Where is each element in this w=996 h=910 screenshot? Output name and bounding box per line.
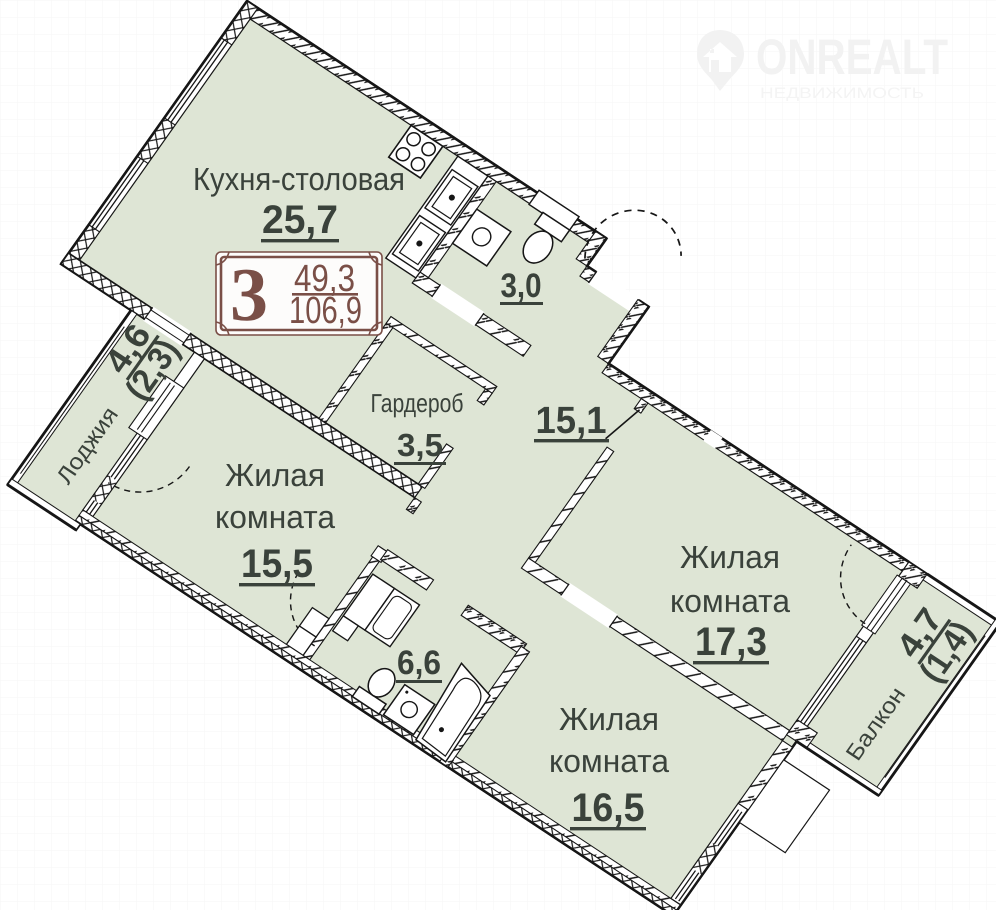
svg-text:Кухня-столовая: Кухня-столовая [193,161,405,197]
svg-text:16,5: 16,5 [572,786,645,830]
svg-text:3,5: 3,5 [397,427,443,463]
svg-text:25,7: 25,7 [262,198,338,242]
svg-text:НЕДВИЖИМОСТЬ: НЕДВИЖИМОСТЬ [760,85,924,102]
svg-text:6,6: 6,6 [397,644,441,682]
svg-text:комната: комната [549,743,669,779]
svg-text:Жилая: Жилая [559,701,659,737]
svg-text:17,3: 17,3 [695,620,767,664]
svg-text:3: 3 [230,253,268,337]
svg-text:106,9: 106,9 [289,290,362,332]
svg-text:Жилая: Жилая [225,457,325,493]
svg-text:ONREALT: ONREALT [756,29,948,85]
svg-text:комната: комната [670,583,790,619]
svg-text:комната: комната [215,499,335,535]
svg-text:Жилая: Жилая [680,539,780,575]
svg-text:15,5: 15,5 [241,542,313,586]
svg-text:3,0: 3,0 [501,267,542,305]
svg-text:15,1: 15,1 [536,400,607,442]
svg-text:Гардероб: Гардероб [371,388,464,418]
